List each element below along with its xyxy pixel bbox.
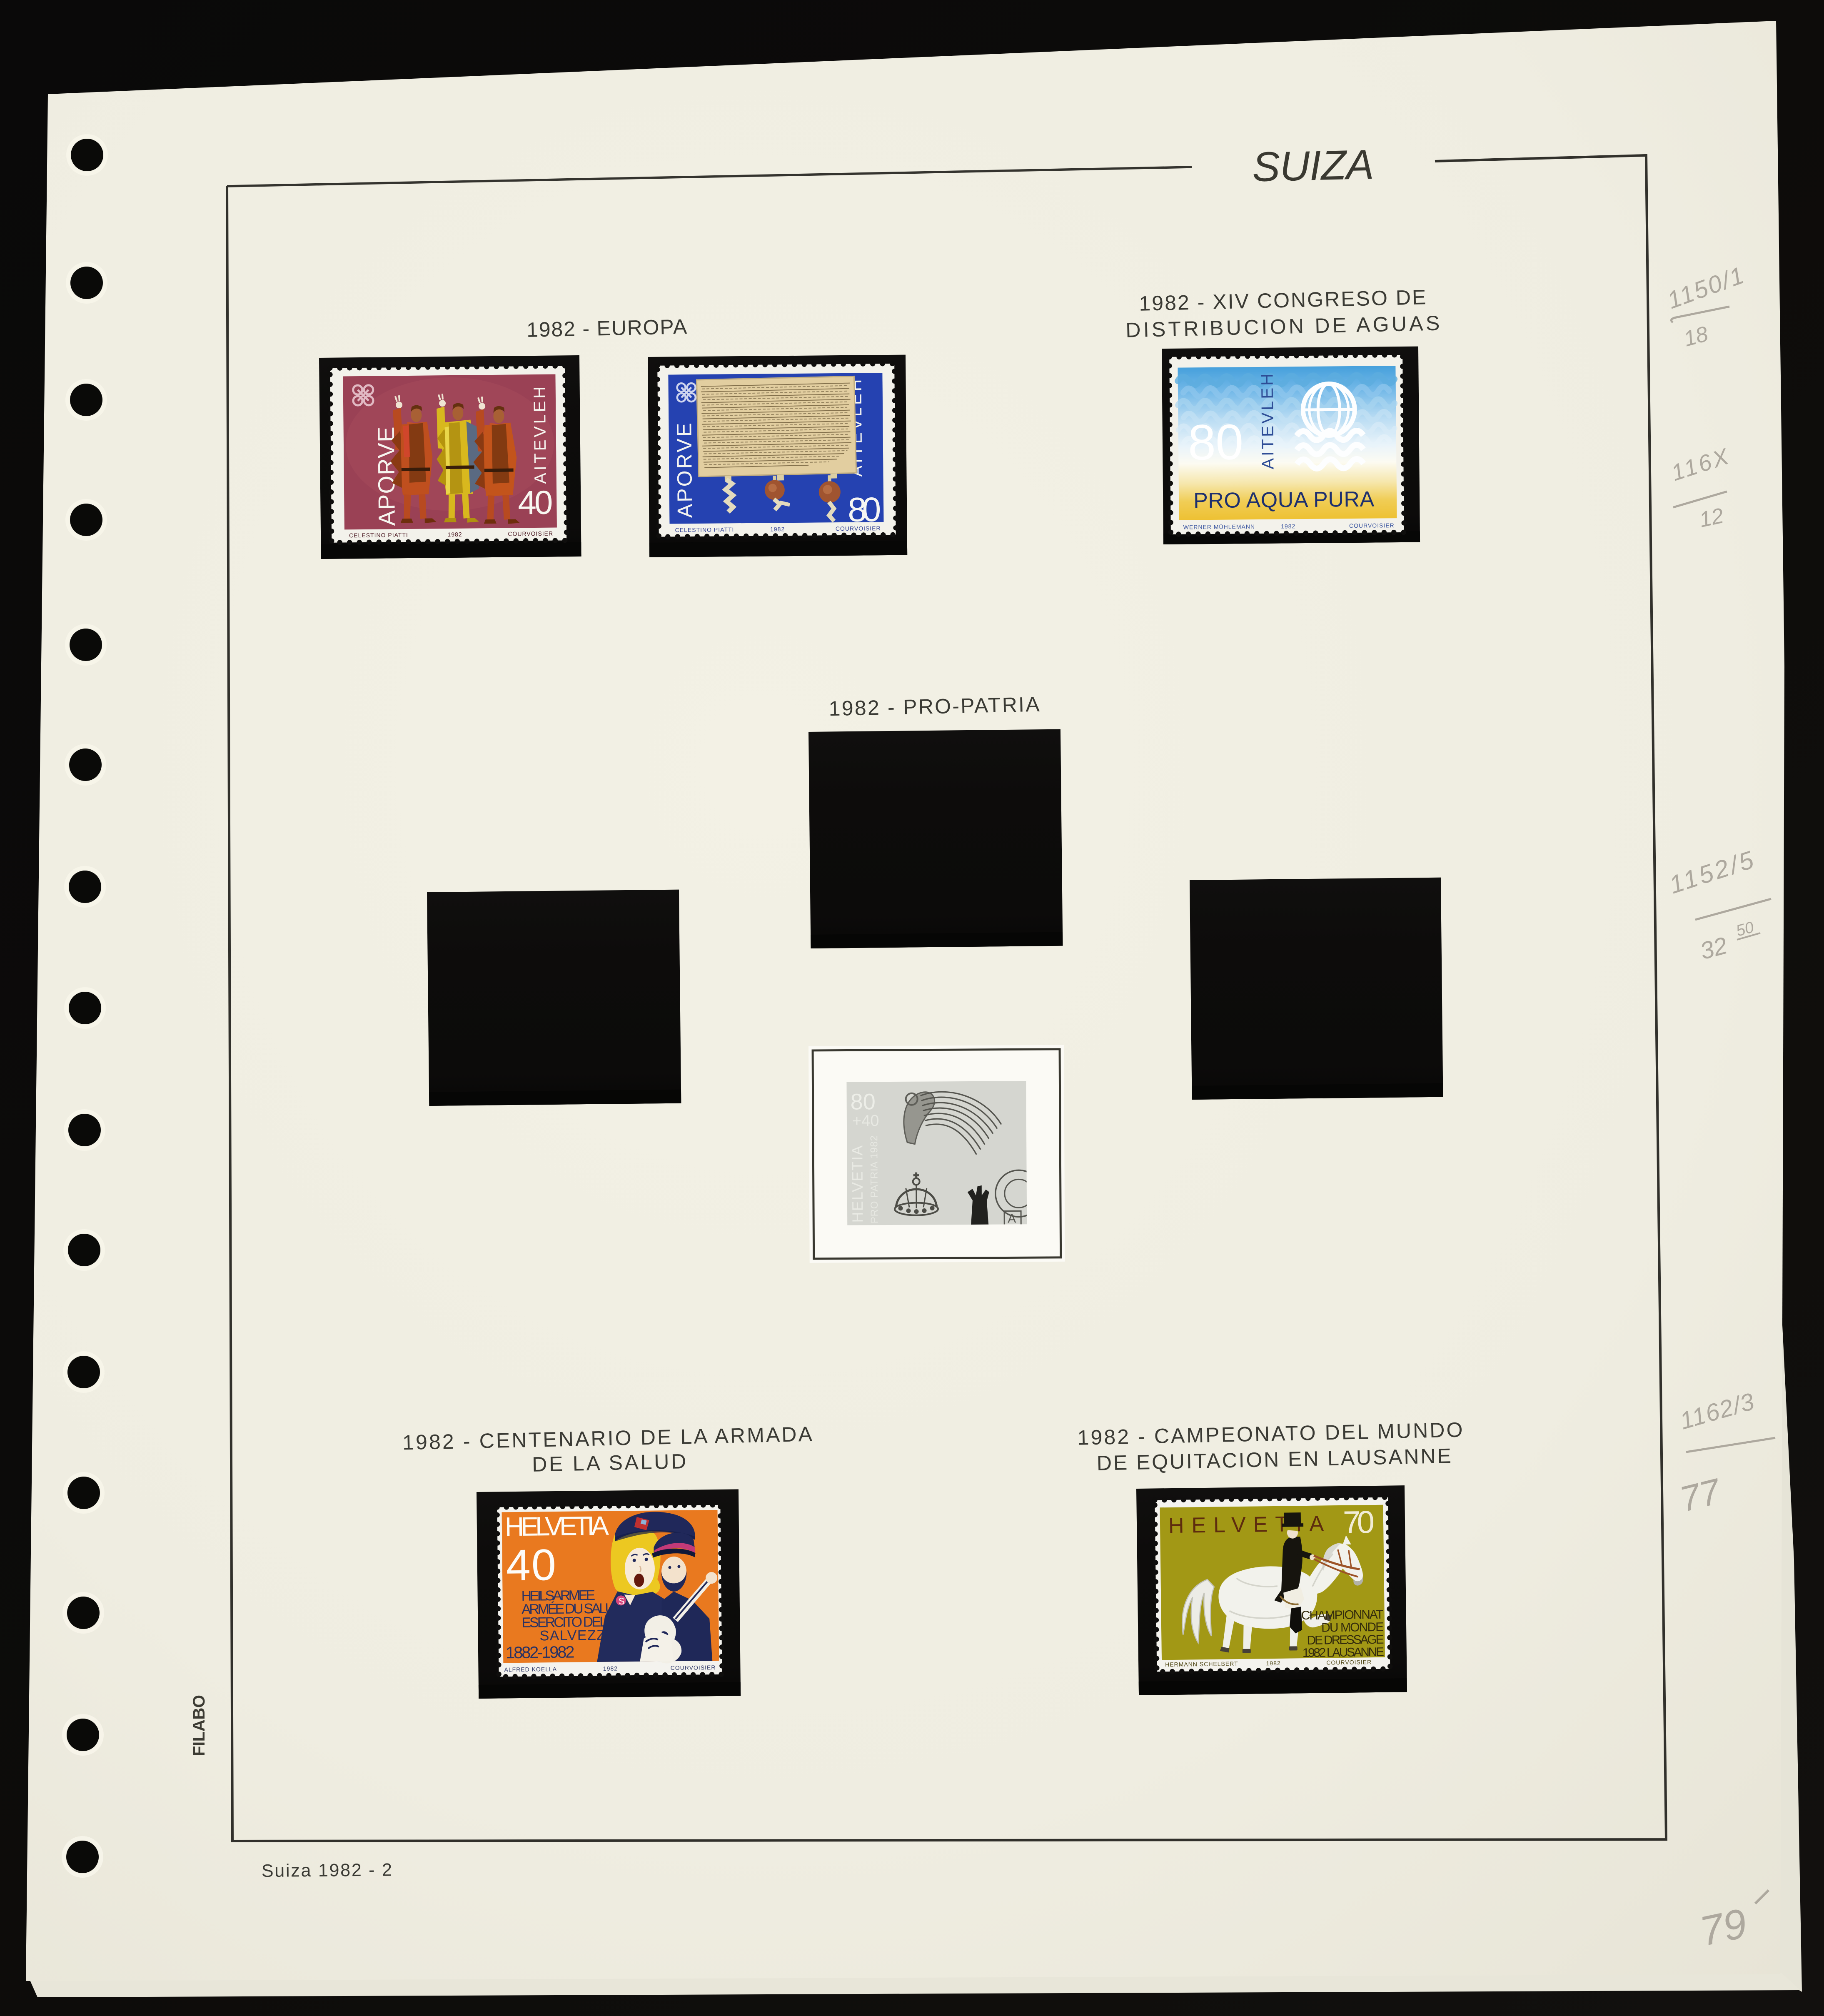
svg-text:HELVETIA: HELVETIA: [848, 1145, 866, 1223]
svg-text:CELESTINO PIATTI: CELESTINO PIATTI: [675, 526, 734, 533]
svg-text:70: 70: [1343, 1505, 1375, 1540]
svg-text:1982: 1982: [603, 1665, 618, 1672]
svg-text:ALFRED KOELLA: ALFRED KOELLA: [504, 1666, 557, 1673]
svg-text:FILABO: FILABO: [190, 1695, 208, 1756]
svg-text:1982: 1982: [1266, 1660, 1280, 1667]
svg-text:S: S: [619, 1596, 625, 1606]
svg-text:HELVETIA: HELVETIA: [1168, 1512, 1328, 1538]
svg-text:COURVOISIER: COURVOISIER: [1326, 1659, 1372, 1666]
svg-text:SUIZA: SUIZA: [1252, 141, 1374, 191]
svg-text:AITEVLEH: AITEVLEH: [1258, 373, 1278, 469]
svg-text:COURVOISIER: COURVOISIER: [1349, 522, 1395, 529]
svg-text:COURVOISIER: COURVOISIER: [508, 530, 553, 537]
svg-text:1882-1982: 1882-1982: [506, 1643, 575, 1662]
svg-text:80: 80: [1188, 414, 1243, 470]
svg-text:1982: 1982: [1281, 523, 1295, 529]
svg-text:Suiza 1982 - 2: Suiza 1982 - 2: [262, 1860, 392, 1881]
svg-text:80: 80: [851, 1089, 876, 1114]
svg-text:PRO PATRIA 1982: PRO PATRIA 1982: [868, 1135, 880, 1223]
svg-text:AITEVLEH: AITEVLEH: [531, 386, 550, 484]
svg-text:CELESTINO PIATTI: CELESTINO PIATTI: [349, 531, 408, 539]
svg-text:40: 40: [518, 484, 553, 521]
svg-text:COURVOISIER: COURVOISIER: [671, 1664, 716, 1671]
svg-text:DE LA SALUD: DE LA SALUD: [532, 1450, 686, 1476]
svg-text:12: 12: [1697, 504, 1726, 532]
svg-text:WERNER MÜHLEMANN: WERNER MÜHLEMANN: [1183, 523, 1255, 531]
svg-text:1982: 1982: [770, 526, 785, 532]
svg-text:1982: 1982: [447, 531, 462, 538]
svg-text:HERMANN SCHELBERT: HERMANN SCHELBERT: [1165, 1660, 1238, 1668]
svg-text:PRO AQUA PURA: PRO AQUA PURA: [1193, 487, 1376, 513]
svg-text:A: A: [1008, 1212, 1016, 1225]
svg-text:80: 80: [848, 491, 881, 529]
svg-text:1982 LAUSANNE: 1982 LAUSANNE: [1303, 1645, 1384, 1660]
svg-text:79: 79: [1696, 1900, 1751, 1955]
svg-text:APORVE: APORVE: [672, 422, 696, 518]
svg-text:COURVOISIER: COURVOISIER: [836, 525, 881, 532]
svg-text:+40: +40: [852, 1112, 879, 1130]
svg-text:HELVETIA: HELVETIA: [504, 1511, 609, 1542]
